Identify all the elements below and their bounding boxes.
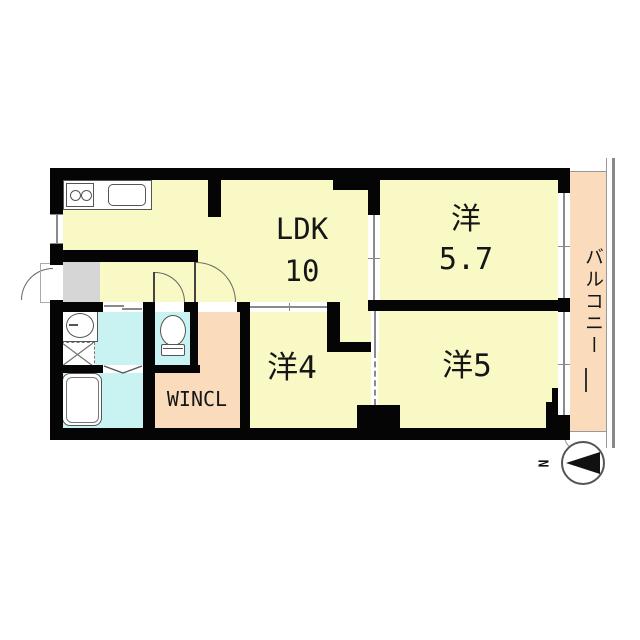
north-arrow-icon <box>566 452 600 474</box>
toilet-icon <box>158 314 188 360</box>
wall-w5-step-b <box>546 402 558 428</box>
toilet-tank <box>161 344 185 356</box>
washbasin-bowl <box>66 313 94 338</box>
bathtub-inner <box>66 377 99 423</box>
kitchen-sink-icon <box>108 184 146 206</box>
north-label: N <box>537 460 552 468</box>
wall-w4-corner-horizontal <box>327 342 371 352</box>
sliding-door-w4 <box>250 302 327 312</box>
wall-kitchen-stub <box>208 180 221 217</box>
room-western-5-7-floor <box>380 180 558 300</box>
floor-plan: LDK 10 洋 5.7 洋4 洋5 WINCL バルコニー N <box>0 0 640 640</box>
ldk-label: LDK <box>260 214 344 244</box>
wall-w57-w5 <box>368 300 562 311</box>
entrance-porch-outline <box>40 263 50 303</box>
wall-hall-north <box>50 250 198 262</box>
sliding-door-washroom <box>103 302 143 312</box>
toilet-bowl <box>160 315 186 346</box>
folding-door-bath <box>103 365 143 373</box>
bathtub-icon <box>62 373 102 426</box>
washbasin-icon <box>62 308 98 342</box>
wall-washroom-toilet <box>143 302 155 373</box>
entrance-floor <box>63 262 100 302</box>
wall-toilet-south <box>143 365 200 373</box>
wall-ldk-w57 <box>368 180 380 215</box>
wall-w4-w5-block <box>357 405 400 428</box>
stove-burner-icon <box>70 190 81 201</box>
wincl-floor-upper <box>198 310 240 371</box>
window-ldk-west <box>50 214 63 244</box>
ldk-size-label: 10 <box>260 256 344 286</box>
wall-corridor-south-a <box>50 302 103 312</box>
window-w5-balcony <box>558 312 570 415</box>
western-5-7-size-label: 5.7 <box>428 244 504 276</box>
opening-toilet-door <box>155 302 184 312</box>
wall-wincl-east <box>240 302 250 428</box>
opening-wincl-door <box>198 302 237 312</box>
balcony-railing <box>606 158 615 448</box>
western-5-7-label: 洋 <box>428 204 504 236</box>
western-5-label: 洋5 <box>425 350 509 383</box>
bath-fold-door-icon <box>103 365 143 375</box>
wall-bottom <box>50 428 570 440</box>
window-w57-balcony <box>558 193 570 298</box>
wincl-label: WINCL <box>153 389 241 410</box>
wall-toilet-wincl <box>190 310 198 373</box>
washer-pan-x <box>62 343 93 366</box>
partition-w4-w5 <box>372 352 378 405</box>
western-4-label: 洋4 <box>250 352 334 385</box>
window-ldk-w57 <box>368 215 380 300</box>
washbasin-tap <box>69 324 78 326</box>
toilet-tank-line <box>163 348 183 349</box>
wall-top <box>50 168 570 180</box>
sliding-door-ldk-w5 <box>371 311 379 352</box>
stove-burner-icon <box>81 190 92 201</box>
stove-burners <box>66 183 94 207</box>
balcony-label: バルコニー <box>576 232 602 372</box>
